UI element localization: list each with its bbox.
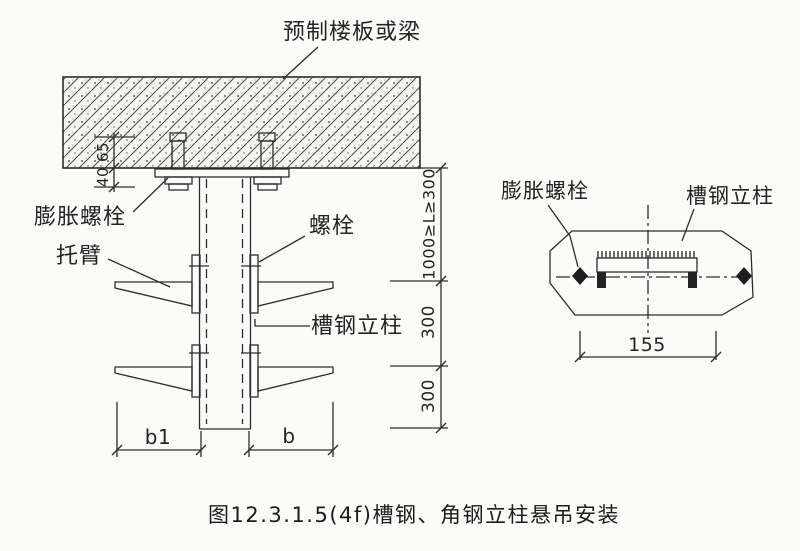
label-channel-column-left: 槽钢立柱	[311, 308, 403, 340]
label-expansion-bolt-left: 膨胀螺栓	[34, 199, 126, 231]
dim-b: b	[282, 424, 295, 448]
diagram-linework	[0, 0, 800, 551]
dim-spacing-1: 300	[419, 305, 439, 339]
label-bolt: 螺栓	[309, 208, 355, 240]
label-precast-slab: 预制楼板或梁	[283, 14, 421, 46]
channel-column-section	[597, 251, 697, 288]
channel-column-elevation	[200, 177, 251, 429]
label-expansion-bolt-right: 膨胀螺栓	[501, 175, 589, 205]
bracket-arms	[115, 282, 333, 391]
dim-protrusion: 40	[94, 167, 112, 187]
dim-embed-depth: 65	[94, 142, 112, 162]
section-view	[63, 47, 448, 457]
expansion-bolt-mark-right	[736, 267, 752, 285]
dim-b1: b1	[145, 425, 171, 449]
dim-spacing-2: 300	[419, 379, 439, 413]
label-channel-column-right: 槽钢立柱	[686, 180, 774, 210]
concrete-slab	[63, 77, 420, 168]
hanger-plate	[155, 169, 289, 177]
label-bracket-arm: 托臂	[56, 238, 102, 270]
dim-hang-range: 1000≥L≥300	[420, 168, 439, 280]
figure-caption: 图12.3.1.5(4f)槽钢、角钢立柱悬吊安装	[208, 499, 620, 529]
figure-canvas: 预制楼板或梁 膨胀螺栓 托臂 螺栓 槽钢立柱 65 40 1000≥L≥300 …	[0, 0, 800, 551]
dim-bolt-spacing: 155	[628, 334, 666, 356]
expansion-bolt-mark-left	[572, 267, 588, 285]
